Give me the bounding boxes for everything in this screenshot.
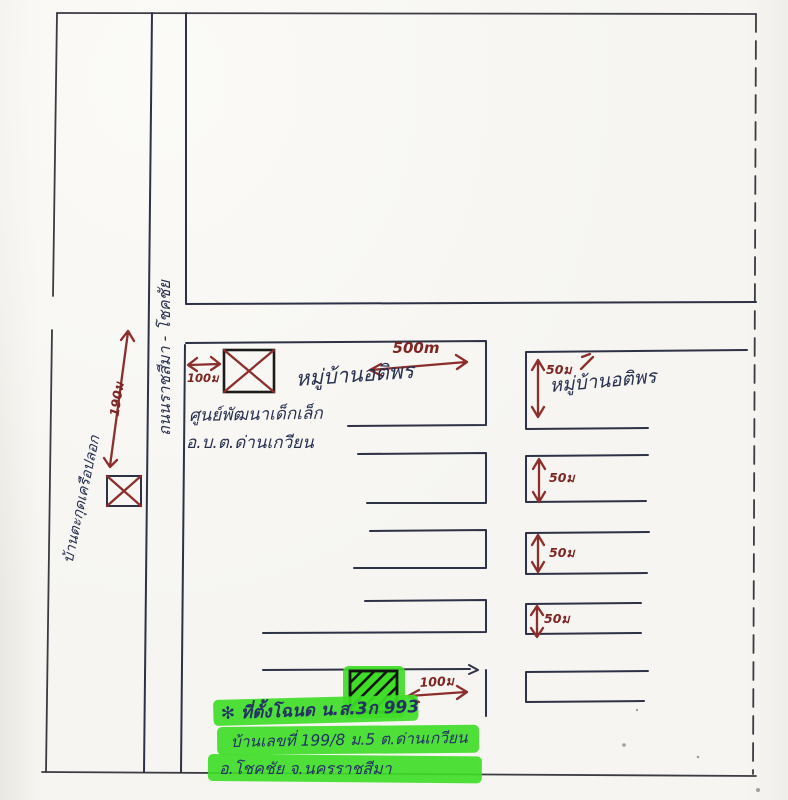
side-road-north-line [186,302,756,304]
border-left [46,13,57,772]
distance-label-190m: 190ม [106,379,126,417]
subdistrict-org-label: อ.บ.ต.ด่านเกวียน [186,433,314,453]
distance-arrow-50m-4 [531,606,543,637]
border-top [57,13,756,14]
border-right [753,14,756,774]
right-block-sois [526,350,747,702]
distance-label-500m: 500m [393,339,440,357]
road-name-label: ถนนราชสีมา - โชคชัย [155,279,174,436]
map-svg: ถนนราชสีมา - โชคชัย บ้านตะกุดเครือปลอก 1… [0,0,788,800]
scanned-sketch-map: ถนนราชสีมา - โชคชัย บ้านตะกุดเครือปลอก 1… [0,0,788,800]
distance-arrow-100m-top [188,357,220,371]
distance-label-50m-4: 50ม [544,611,571,626]
road-line-east-lower [181,345,185,772]
distance-label-50m-3: 50ม [549,545,576,560]
road-line-west [144,13,152,772]
left-block-sois [186,341,486,716]
left-soi-3 [354,530,486,568]
distance-label-50m-2: 50ม [549,470,576,485]
note-line-3: อ.โชคชัย จ.นครราชสีมา [219,759,393,778]
village-name-left-block: หมู่บ้านอติพร [295,359,418,392]
childcare-center-label: ศูนย์พัฒนาเด็กเล็ก [189,403,324,426]
crossed-box-marker-top [224,350,274,392]
distance-label-50m-1: 50ม [546,362,573,377]
left-village-label: บ้านตะกุดเครือปลอก [60,433,104,564]
side-road-horizontal [186,302,756,304]
left-soi-4 [263,600,486,633]
right-soi-5 [526,671,648,702]
page-border [42,13,756,776]
left-soi-2 [358,453,486,503]
distance-arrow-50m-2 [533,459,545,502]
distance-arrow-50m-3 [532,535,544,572]
crossed-box-marker-roadside [107,476,141,506]
distance-label-100m-bottom: 100ม [419,673,456,690]
angle-tick-mark [581,354,593,369]
distance-label-100m-top: 100ม [187,371,220,385]
distance-arrow-50m-1 [532,360,544,417]
right-soi-3 [526,532,649,574]
